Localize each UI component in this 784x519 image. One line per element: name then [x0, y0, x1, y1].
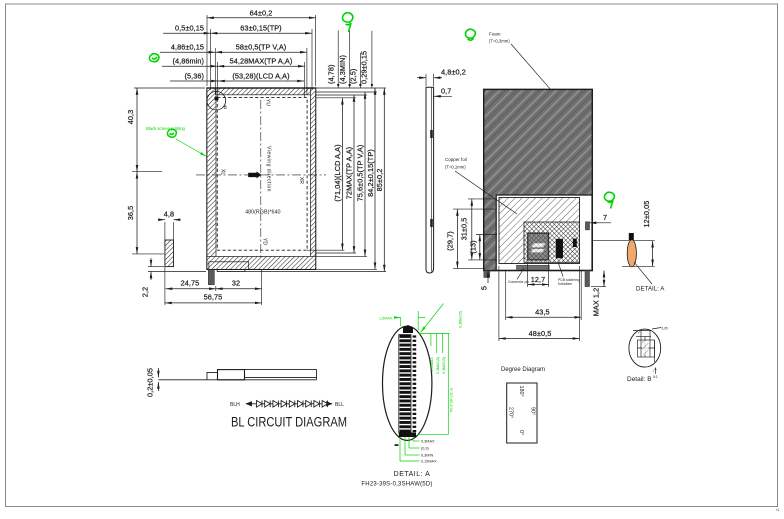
svg-text:40,3: 40,3: [126, 110, 135, 125]
svg-text:(T=0,3mm): (T=0,3mm): [489, 39, 510, 44]
svg-text:0,15MAX: 0,15MAX: [421, 460, 437, 464]
svg-text:FH23-39S-0,3SHAW(5D): FH23-39S-0,3SHAW(5D): [361, 482, 432, 488]
svg-text:4,8: 4,8: [164, 210, 174, 219]
svg-text:(53,28)(LCD A,A): (53,28)(LCD A,A): [232, 72, 289, 81]
svg-text:BLL: BLL: [335, 402, 344, 408]
svg-text:(2,5): (2,5): [349, 69, 358, 84]
svg-text:0,2±0,05: 0,2±0,05: [146, 368, 155, 397]
svg-text:75,6±0,5(TP V,A): 75,6±0,5(TP V,A): [355, 145, 364, 202]
svg-text:480(RGB)*640: 480(RGB)*640: [245, 210, 280, 216]
svg-text:Detail: B: Detail: B: [627, 376, 652, 383]
svg-text:Degree Diagram: Degree Diagram: [501, 367, 545, 373]
svg-text:64±0,2: 64±0,2: [250, 9, 273, 18]
svg-text:DETAIL: A: DETAIL: A: [636, 286, 665, 293]
svg-text:(4,3MIN): (4,3MIN): [338, 55, 347, 84]
svg-text:0,3MAX(5): 0,3MAX(5): [459, 311, 463, 328]
svg-text:12±0,05: 12±0,05: [642, 201, 651, 228]
svg-text:4,86±0,15: 4,86±0,15: [171, 43, 204, 52]
svg-text:0,5±0,15: 0,5±0,15: [175, 24, 204, 33]
svg-text:4,8±0,2: 4,8±0,2: [441, 68, 466, 77]
svg-text:0,3MAX(5): 0,3MAX(5): [442, 357, 446, 374]
svg-text:36,5: 36,5: [126, 206, 135, 221]
svg-text:0°: 0°: [518, 430, 524, 435]
svg-text:r1: r1: [776, 508, 779, 512]
svg-text:(0,3): (0,3): [421, 447, 430, 451]
svg-text:forbidden: forbidden: [558, 282, 572, 286]
svg-text:72MAX(TP A,A): 72MAX(TP A,A): [344, 147, 353, 199]
svg-text:Copper foil: Copper foil: [445, 157, 467, 162]
svg-text:Foam: Foam: [489, 32, 501, 37]
svg-text:Viewing direction: Viewing direction: [266, 146, 272, 192]
svg-text:180°: 180°: [518, 386, 524, 397]
svg-text:(T=0,1mm): (T=0,1mm): [445, 165, 466, 170]
svg-text:(71,04)(LCD A,A): (71,04)(LCD A,A): [333, 144, 342, 201]
svg-text:12,7: 12,7: [531, 275, 546, 284]
svg-text:Black screen printing: Black screen printing: [146, 126, 186, 131]
svg-text:XL: XL: [220, 169, 226, 175]
svg-text:5:1: 5:1: [653, 375, 658, 379]
svg-text:5: 5: [480, 286, 489, 290]
svg-text:(5,36): (5,36): [184, 72, 204, 81]
svg-text:7: 7: [603, 213, 607, 222]
svg-text:(13): (13): [468, 240, 477, 253]
svg-text:24,75: 24,75: [181, 279, 200, 288]
svg-text:MAX 1,2: MAX 1,2: [592, 288, 601, 317]
svg-text:BLH: BLH: [230, 402, 240, 408]
svg-text:31±0,5: 31±0,5: [460, 218, 469, 241]
svg-text:(4,86min): (4,86min): [172, 57, 204, 66]
svg-text:YU: YU: [265, 99, 271, 106]
svg-text:58±0,5(TP V,A): 58±0,5(TP V,A): [236, 43, 287, 52]
svg-text:54,28MAX(TP A,A): 54,28MAX(TP A,A): [230, 57, 293, 66]
svg-text:0,29±0,15: 0,29±0,15: [360, 51, 369, 84]
svg-text:56,75: 56,75: [204, 293, 223, 302]
svg-text:2,2: 2,2: [141, 287, 150, 297]
svg-text:XR: XR: [298, 177, 304, 184]
svg-text:0,3MAX(5): 0,3MAX(5): [436, 357, 440, 374]
svg-text:BL CIRCUIT DIAGRAM: BL CIRCUIT DIAGRAM: [231, 415, 347, 430]
svg-text:48±0,5: 48±0,5: [529, 329, 552, 338]
svg-text:YD: YD: [262, 238, 268, 245]
svg-text:(4,78): (4,78): [327, 64, 336, 84]
svg-text:32: 32: [232, 279, 240, 288]
svg-text:84,2±0,15(TP): 84,2±0,15(TP): [366, 149, 375, 197]
svg-text:0,7: 0,7: [441, 87, 451, 96]
svg-text:0,3MAX: 0,3MAX: [421, 440, 435, 444]
svg-text:Connector pin: Connector pin: [508, 280, 529, 284]
svg-text:43,5: 43,5: [535, 308, 550, 317]
svg-text:270°: 270°: [508, 407, 514, 418]
svg-text:0,35MAX: 0,35MAX: [430, 357, 434, 372]
svg-text:0,3MIN: 0,3MIN: [421, 454, 433, 458]
svg-text:0,05: 0,05: [662, 327, 668, 331]
svg-text:90°: 90°: [530, 407, 536, 415]
svg-text:1,5MAX: 1,5MAX: [379, 317, 393, 321]
svg-text:DETAIL: A: DETAIL: A: [394, 471, 431, 478]
svg-text:P0,3*38=(11,4): P0,3*38=(11,4): [450, 388, 454, 412]
svg-text:(29,7): (29,7): [446, 231, 455, 251]
svg-text:63±0,15(TP): 63±0,15(TP): [240, 24, 281, 33]
svg-text:85±0,2: 85±0,2: [375, 169, 384, 192]
